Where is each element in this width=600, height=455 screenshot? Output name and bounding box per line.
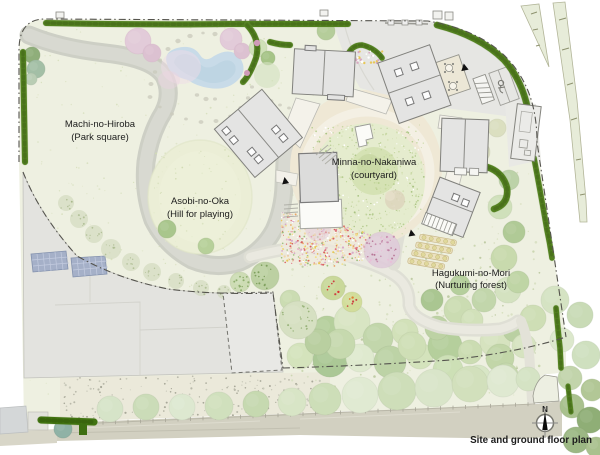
svg-text:Hagukumi-no-Mori: Hagukumi-no-Mori (432, 268, 510, 279)
svg-text:Minna-no-Nakaniwa: Minna-no-Nakaniwa (332, 157, 417, 168)
svg-text:Machi-no-Hiroba: Machi-no-Hiroba (65, 119, 136, 130)
svg-text:(courtyard): (courtyard) (351, 170, 397, 181)
svg-text:Asobi-no-Oka: Asobi-no-Oka (171, 196, 230, 207)
svg-text:Site and ground floor plan: Site and ground floor plan (470, 435, 592, 446)
svg-text:(Hill for playing): (Hill for playing) (167, 209, 233, 220)
svg-text:(Nurturing forest): (Nurturing forest) (435, 280, 507, 291)
svg-text:(Park square): (Park square) (71, 132, 129, 143)
